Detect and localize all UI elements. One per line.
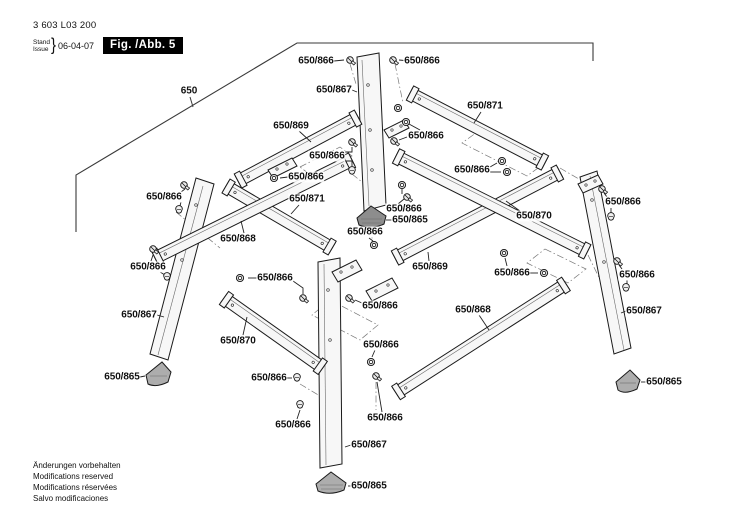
part-callout-650-867: 650/867 — [625, 306, 662, 317]
legal-notes: Änderungen vorbehalten Modifications res… — [33, 460, 121, 504]
assembly-bracket-line — [76, 43, 593, 232]
parts-diagram-page: 650650/866650/866650/867650/869650/87165… — [0, 0, 750, 530]
leg-rear — [357, 53, 386, 211]
part-callout-650-869: 650/869 — [272, 121, 309, 132]
part-callout-650-866: 650/866 — [493, 268, 530, 279]
part-callout-650-871: 650/871 — [466, 101, 503, 112]
cap-nut-icon — [294, 374, 301, 382]
foot-rear — [357, 206, 386, 227]
part-callout-650-867: 650/867 — [350, 440, 387, 451]
part-callout-650-866: 650/866 — [403, 56, 440, 67]
document-number: 3 603 L03 200 — [33, 20, 96, 31]
issue-label: Issue — [33, 46, 50, 53]
part-callout-650-866: 650/866 — [250, 373, 287, 384]
part-callout-650-866: 650/866 — [308, 151, 345, 162]
nut-icon — [503, 168, 510, 175]
foot-left — [146, 362, 171, 386]
part-callout-650-866: 650/866 — [407, 131, 444, 142]
screw-icon — [373, 373, 382, 381]
part-callout-650-866: 650/866 — [366, 413, 403, 424]
part-callout-650-865: 650/865 — [391, 215, 428, 226]
part-callout-650-866: 650/866 — [297, 56, 334, 67]
nut-icon — [236, 274, 243, 281]
screw-icon — [349, 139, 358, 147]
part-callout-650-866: 650/866 — [129, 262, 166, 273]
cap-nut-icon — [297, 401, 304, 409]
screw-icon — [391, 138, 400, 146]
part-callout-650-866: 650/866 — [362, 340, 399, 351]
part-callout-650-867: 650/867 — [120, 310, 157, 321]
screw-icon — [346, 295, 355, 303]
cap-nut-icon — [176, 206, 183, 214]
part-callout-650-866: 650/866 — [346, 227, 383, 238]
screw-icon — [404, 194, 413, 202]
part-callout-650-865: 650/865 — [350, 481, 387, 492]
cap-nut-icon — [349, 167, 356, 175]
nut-icon — [270, 174, 277, 181]
part-callout-650-866: 650/866 — [604, 197, 641, 208]
issue-date: 06-04-07 — [58, 41, 94, 51]
part-callout-650-867: 650/867 — [315, 85, 352, 96]
part-callout-650-868: 650/868 — [454, 305, 491, 316]
rail-650-868-front-right — [392, 277, 571, 400]
foot-right — [616, 370, 640, 392]
part-callout-650-865: 650/865 — [645, 377, 682, 388]
nut-icon — [402, 118, 409, 125]
legal-note-de: Änderungen vorbehalten — [33, 460, 121, 471]
part-callout-650-866: 650/866 — [385, 204, 422, 215]
rail-650-870-front-left — [219, 291, 327, 374]
nut-icon — [498, 157, 505, 164]
part-callout-650-869: 650/869 — [411, 262, 448, 273]
part-callout-650-870: 650/870 — [515, 211, 552, 222]
nut-icon — [394, 104, 401, 111]
screw-icon — [181, 182, 190, 190]
cap-nut-icon — [608, 213, 615, 221]
exploded-view-drawing — [0, 0, 750, 530]
legal-note-fr: Modifications réservées — [33, 482, 121, 493]
part-callout-650-866: 650/866 — [361, 301, 398, 312]
nut-icon — [370, 241, 377, 248]
screw-icon — [300, 295, 309, 303]
part-callout-650-868: 650/868 — [219, 234, 256, 245]
legal-note-en: Modifications reserved — [33, 471, 121, 482]
part-callout-650-865: 650/865 — [103, 372, 140, 383]
part-callout-650-866: 650/866 — [274, 420, 311, 431]
part-callout-650-870: 650/870 — [219, 336, 256, 347]
construction-lines — [160, 60, 621, 466]
part-callout-650-866: 650/866 — [287, 172, 324, 183]
issue-block: Stand Issue } 06-04-07 Fig. /Abb. 5 — [33, 37, 183, 54]
nut-icon — [500, 249, 507, 256]
foot-front — [316, 472, 346, 493]
nut-icon — [367, 358, 374, 365]
part-callout-650: 650 — [180, 86, 198, 97]
screw-icon — [347, 57, 356, 65]
nut-icon — [398, 181, 405, 188]
stand-label: Stand — [33, 39, 50, 46]
part-callout-650-866: 650/866 — [256, 273, 293, 284]
brace-glyph: } — [51, 36, 56, 56]
part-callout-650-866: 650/866 — [618, 270, 655, 281]
screw-icon — [390, 57, 399, 65]
part-callout-650-871: 650/871 — [288, 194, 325, 205]
cap-nut-icon — [164, 273, 171, 281]
cap-nut-icon — [623, 284, 630, 292]
nut-icon — [540, 269, 547, 276]
rail-650-871-top-right — [406, 86, 548, 170]
figure-label: Fig. /Abb. 5 — [103, 37, 183, 54]
legal-note-es: Salvo modificaciones — [33, 493, 121, 504]
part-callout-650-866: 650/866 — [453, 165, 490, 176]
part-callout-650-866: 650/866 — [145, 192, 182, 203]
